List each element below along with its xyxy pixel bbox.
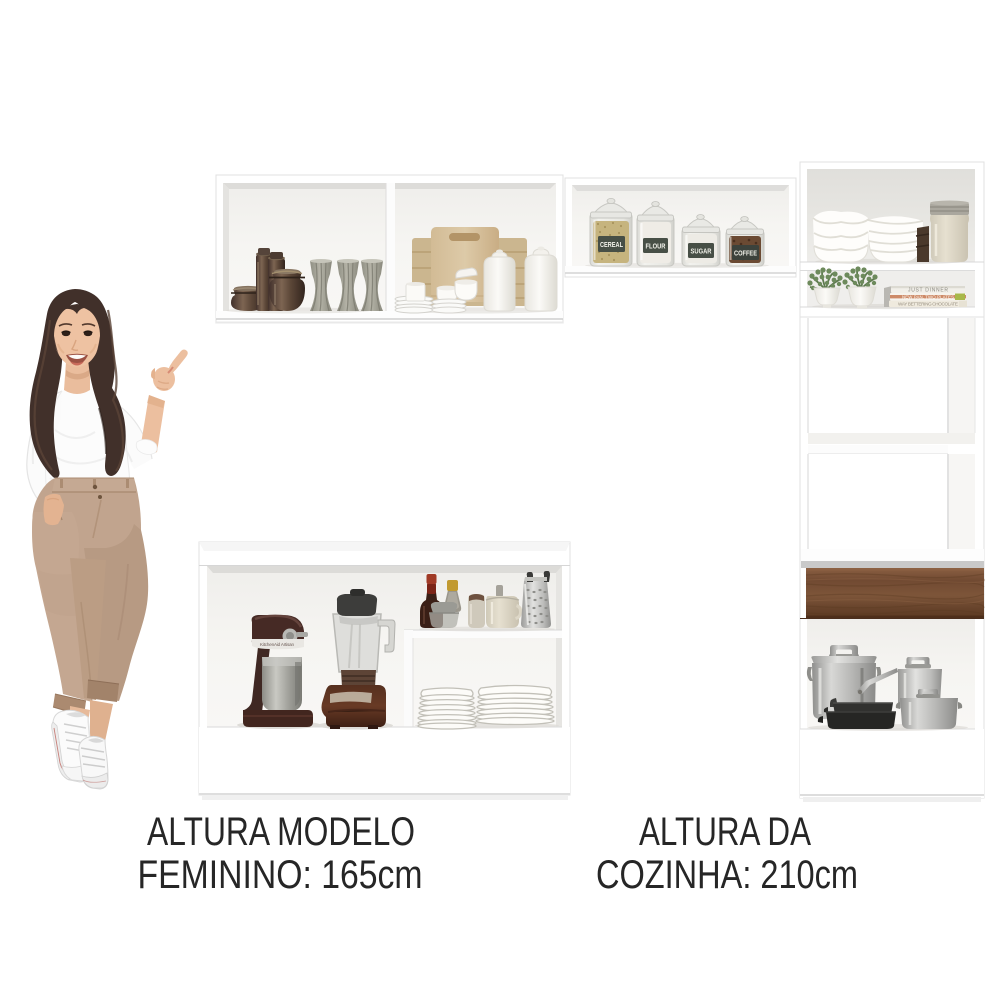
svg-text:COZINHA: 210cm: COZINHA: 210cm: [596, 853, 858, 897]
svg-text:FLOUR: FLOUR: [646, 242, 666, 251]
svg-text:NEW PAN, TWO PLATES: NEW PAN, TWO PLATES: [902, 294, 954, 299]
svg-text:SUGAR: SUGAR: [691, 247, 712, 256]
svg-text:ALTURA DA: ALTURA DA: [639, 810, 811, 854]
svg-text:WAY BETTERING CHOCOLATE: WAY BETTERING CHOCOLATE: [898, 302, 958, 307]
svg-text:FEMININO: 165cm: FEMININO: 165cm: [138, 853, 423, 897]
svg-text:KitchenAid Artisan: KitchenAid Artisan: [260, 642, 294, 647]
svg-text:JUST DINNER: JUST DINNER: [908, 288, 948, 294]
svg-text:COFFEE: COFFEE: [734, 249, 757, 258]
svg-text:CEREAL: CEREAL: [600, 240, 623, 249]
svg-text:ALTURA MODELO: ALTURA MODELO: [147, 810, 415, 854]
